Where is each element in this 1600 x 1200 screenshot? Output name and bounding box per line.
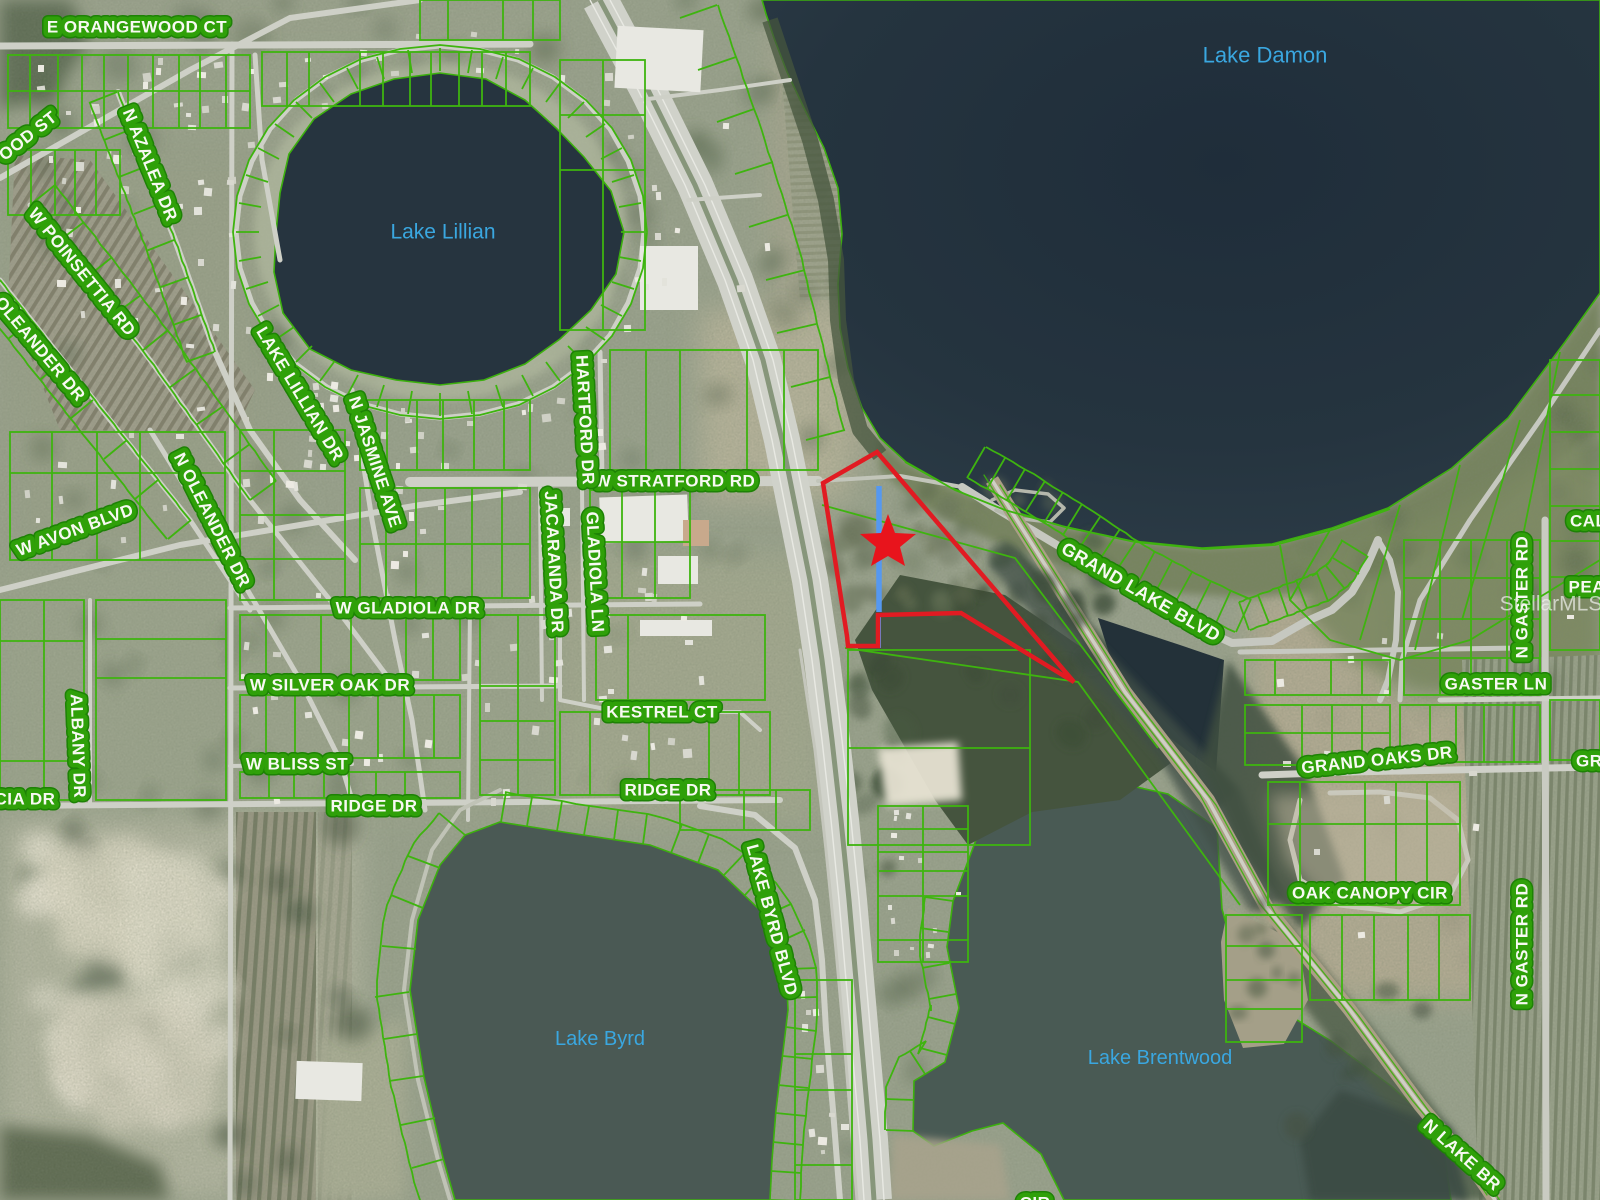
svg-text:Lake Brentwood: Lake Brentwood xyxy=(1088,1047,1233,1069)
svg-text:W SILVER OAK DR: W SILVER OAK DR xyxy=(250,676,410,695)
svg-text:CALLA: CALLA xyxy=(1570,512,1600,531)
svg-text:W GLADIOLA DR: W GLADIOLA DR xyxy=(336,599,481,618)
svg-text:RIDGE DR: RIDGE DR xyxy=(624,781,711,800)
svg-text:ALBANY DR: ALBANY DR xyxy=(67,694,90,799)
svg-text:W STRATFORD RD: W STRATFORD RD xyxy=(595,472,756,491)
svg-text:W BLISS ST: W BLISS ST xyxy=(246,755,348,774)
svg-text:StellarMLS: StellarMLS xyxy=(1500,593,1600,616)
svg-text:Lake Lillian: Lake Lillian xyxy=(390,221,495,244)
svg-text:GASTER LN: GASTER LN xyxy=(1445,675,1548,694)
svg-text:N GASTER RD: N GASTER RD xyxy=(1513,883,1532,1006)
svg-text:E ORANGEWOOD CT: E ORANGEWOOD CT xyxy=(47,18,227,37)
svg-text:CIA DR: CIA DR xyxy=(0,790,55,809)
svg-text:KESTREL CT: KESTREL CT xyxy=(606,703,718,722)
svg-text:CIR: CIR xyxy=(1020,1194,1051,1200)
svg-text:Lake Damon: Lake Damon xyxy=(1203,43,1328,68)
svg-text:OAK CANOPY CIR: OAK CANOPY CIR xyxy=(1292,884,1448,903)
svg-text:RIDGE DR: RIDGE DR xyxy=(330,797,417,816)
svg-text:Lake Byrd: Lake Byrd xyxy=(555,1028,645,1050)
svg-text:GROVE: GROVE xyxy=(1576,752,1600,771)
